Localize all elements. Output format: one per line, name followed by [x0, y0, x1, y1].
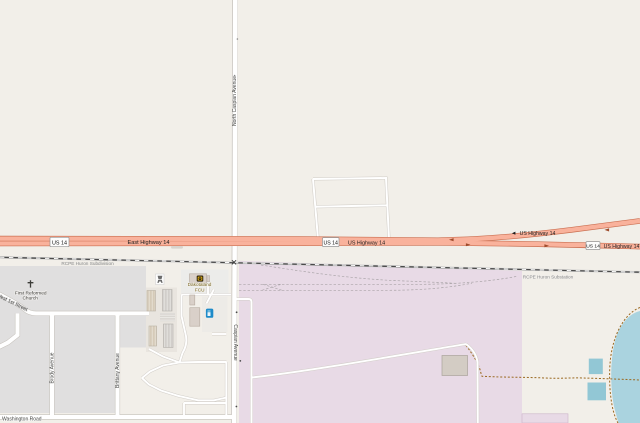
svg-text:Washington Road: Washington Road — [2, 416, 42, 422]
svg-text:Caspian Avenue: Caspian Avenue — [232, 324, 238, 361]
svg-text:Church: Church — [22, 296, 38, 302]
svg-text:US 14: US 14 — [323, 240, 338, 246]
svg-text:US Highway 14: US Highway 14 — [604, 244, 640, 250]
svg-text:First Reformed: First Reformed — [15, 290, 47, 296]
svg-text:RCPE Huron Subdivision: RCPE Huron Subdivision — [61, 261, 114, 266]
svg-text:US 14: US 14 — [586, 244, 600, 250]
svg-text:Brody Avenue: Brody Avenue — [49, 352, 55, 383]
svg-text:US Highway 14: US Highway 14 — [348, 240, 385, 246]
svg-text:US 14: US 14 — [52, 241, 67, 247]
svg-text:Brittany Avenue: Brittany Avenue — [115, 353, 121, 388]
svg-text:East Highway 14: East Highway 14 — [128, 240, 170, 246]
svg-text:RCPE Huron Substation: RCPE Huron Substation — [523, 275, 574, 280]
svg-text:North Caspian Avenue: North Caspian Avenue — [232, 76, 238, 126]
svg-text:US Highway 14: US Highway 14 — [520, 231, 556, 237]
svg-text:Dakotaland: Dakotaland — [188, 282, 212, 287]
svg-text:FCU: FCU — [195, 287, 205, 292]
